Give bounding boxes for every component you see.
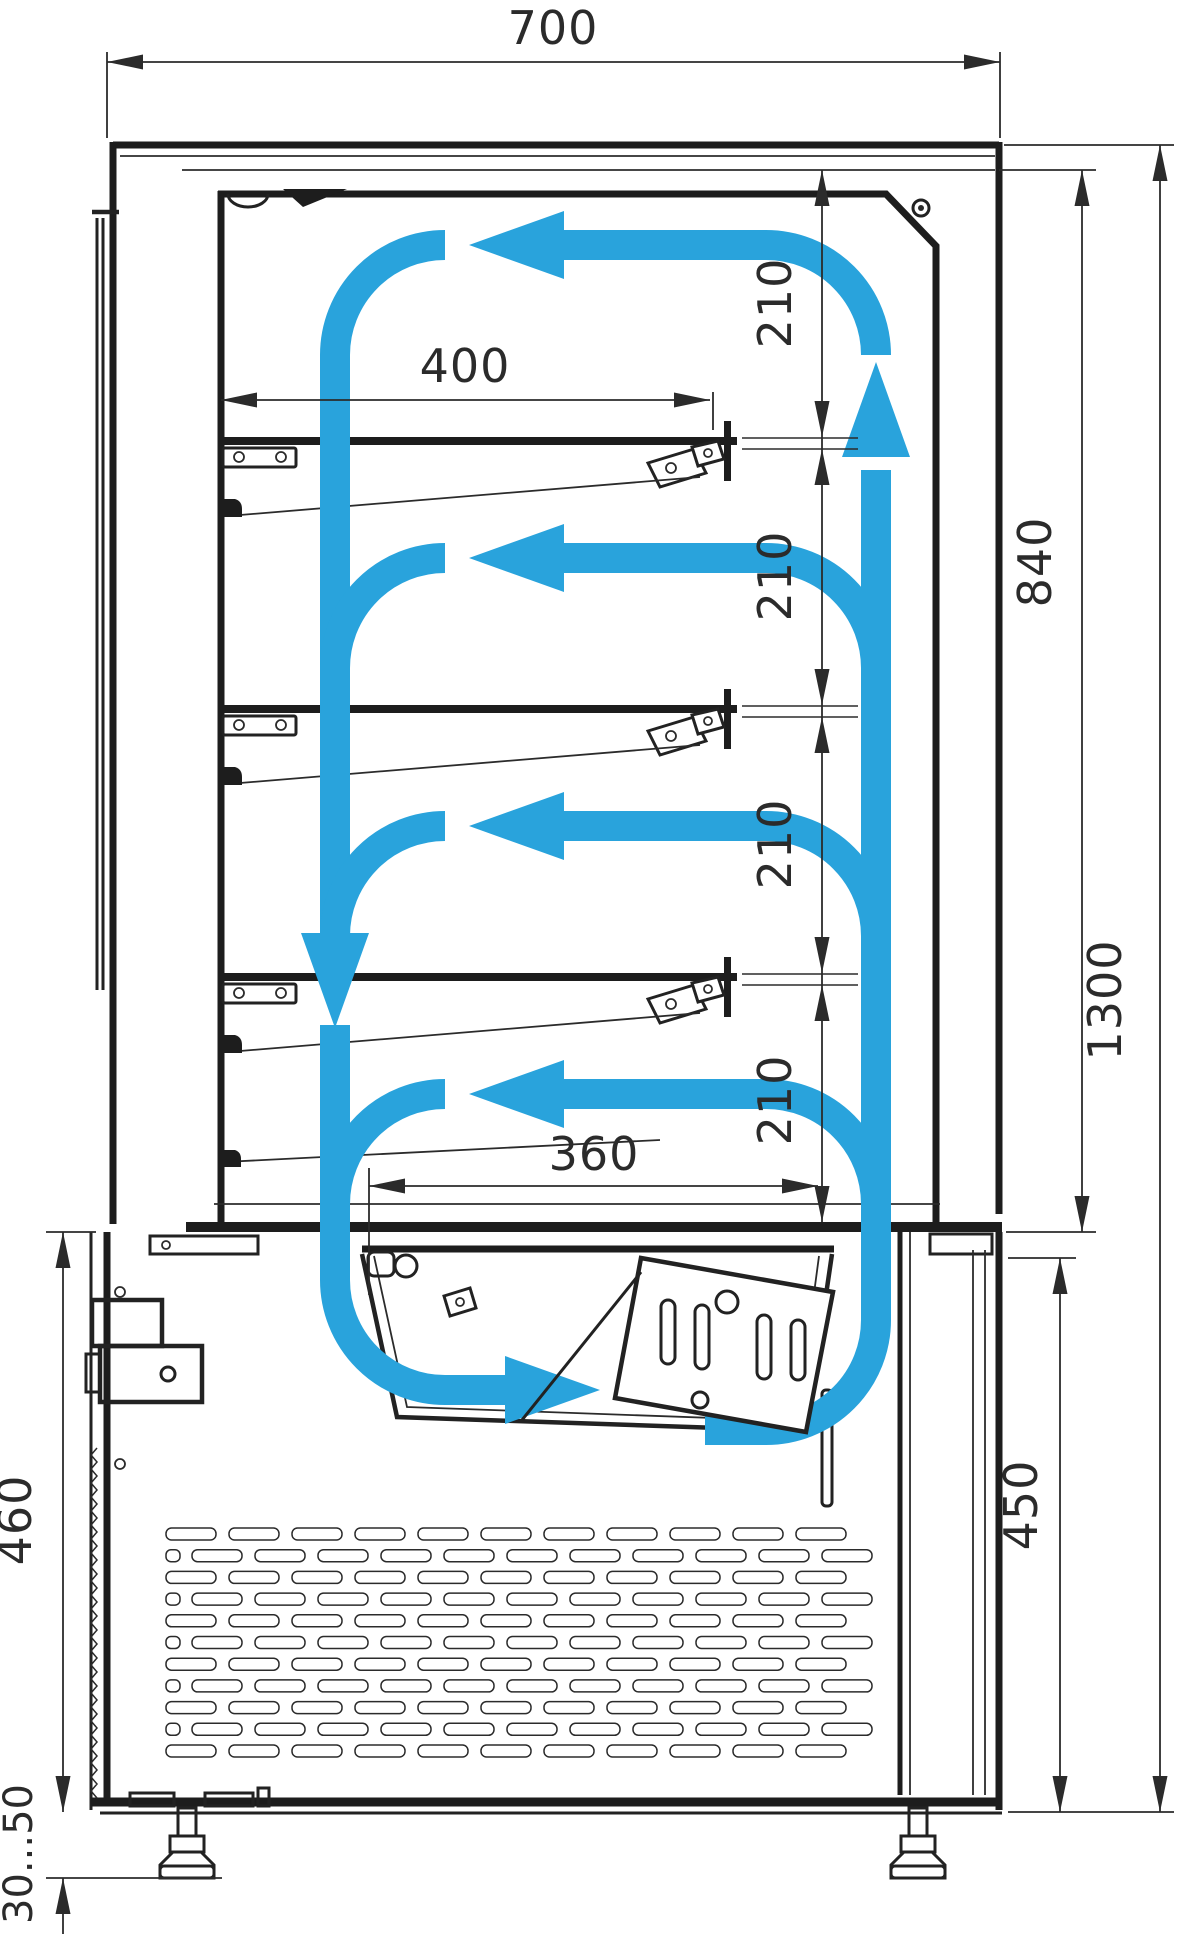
grille-slot [570,1723,620,1735]
grille-slot [733,1615,783,1627]
grille-slot [166,1528,216,1540]
grille-slot [822,1593,872,1605]
airflow-bottom-run [335,1025,505,1390]
grille-slot [166,1702,216,1714]
dim-arrow [815,449,830,485]
dim-arrow [1053,1258,1068,1294]
grille-slot [759,1680,809,1692]
grille-slot [166,1550,180,1562]
electrical-box-upper [92,1300,162,1346]
grille-slot [166,1571,216,1583]
bracket-screw-icon [234,452,244,462]
electrical-box-lower [100,1346,202,1402]
dim-label-700: 700 [508,1,599,55]
evaporator-plate [615,1258,833,1432]
feet-group [46,1808,945,1878]
grille-slot [507,1723,557,1735]
grille-slot [381,1593,431,1605]
seam-right-filler [930,1234,992,1254]
grille-slot [544,1571,594,1583]
grille-slot [607,1702,657,1714]
dim-arrow [815,937,830,973]
grille-slot [696,1593,746,1605]
foot-base [160,1866,214,1878]
dim-arrow [1153,1776,1168,1812]
shelf-wall-lug [221,1035,242,1053]
airflow-band-2-elbow [335,558,445,668]
grille-slot [570,1550,620,1562]
grille-slot [759,1593,809,1605]
adjustable-foot-right [891,1808,945,1878]
grille-slot [166,1637,180,1649]
dim-arrow [815,170,830,206]
grille-slot [570,1593,620,1605]
shelf-1 [221,421,737,517]
grille-slot [481,1528,531,1540]
grille-slot [192,1593,242,1605]
dim-label-30-50: 30...50 [0,1784,42,1924]
grille-slot [192,1550,242,1562]
grille-slot [633,1593,683,1605]
grille-slot [759,1550,809,1562]
grille-slot [822,1550,872,1562]
grille-slot [696,1723,746,1735]
dim-arrow [369,1179,405,1194]
grille-slot [633,1550,683,1562]
dim-210-extensions [742,438,858,985]
corner-screw-dot [918,205,924,211]
grille-slot [166,1593,180,1605]
grille-slot [355,1528,405,1540]
grille-slot [192,1680,242,1692]
shelf-clamp-jaw [692,441,724,466]
dim-arrow [782,1179,818,1194]
grille-slot [355,1615,405,1627]
grille-slot [192,1637,242,1649]
grille-slot [544,1528,594,1540]
grille-slot [570,1637,620,1649]
grille-slot [733,1658,783,1670]
dim-label-1300: 1300 [1078,939,1132,1060]
grille-slot [544,1745,594,1757]
grille-slot [255,1680,305,1692]
shelf-wall-lug [221,767,242,785]
grille-slot [570,1680,620,1692]
shelf-clamp-pin [724,957,731,1017]
grille-slot [292,1571,342,1583]
grille-slot [355,1745,405,1757]
grille-slot [229,1571,279,1583]
grille-slot [444,1637,494,1649]
seam-hinge-screw-icon [162,1241,170,1249]
airflow-arrow-left-1 [469,211,564,279]
grille-slot [355,1571,405,1583]
grille-slot [444,1550,494,1562]
dim-arrow [815,985,830,1021]
pan-pivot-knob-icon [395,1255,417,1277]
display-case-diagram: 700 400 360 210 210 210 210 840 [0,0,1179,1952]
grille-slot [166,1723,180,1735]
grille-slot [229,1658,279,1670]
grille-slot [292,1615,342,1627]
grille-slot [822,1723,872,1735]
airflow-arrow-left-2 [469,524,564,592]
grille-slot [507,1680,557,1692]
airflow-band-3 [557,826,876,936]
grille-slot [166,1745,216,1757]
grille-slot [381,1723,431,1735]
grille-slot [481,1571,531,1583]
dim-arrow [674,393,710,408]
dim-label-210-2: 210 [748,531,802,622]
adjustable-foot-left [160,1808,214,1878]
dim-arrow [815,669,830,705]
grille-slot [255,1723,305,1735]
grille-slot [633,1637,683,1649]
airflow-arrow-left-3 [469,792,564,860]
dim-label-210-1: 210 [748,258,802,349]
grille-slot [607,1658,657,1670]
dim-700-lines [107,52,1000,138]
dim-label-450: 450 [994,1460,1048,1551]
grille-slot [229,1615,279,1627]
grille-slot [292,1745,342,1757]
shelf-support-arm [240,477,700,515]
grille-slot [670,1571,720,1583]
grille-slot [670,1745,720,1757]
grille-slot [696,1550,746,1562]
dim-label-400: 400 [420,339,511,393]
dim-label-210-4: 210 [748,1055,802,1146]
grille-slot [255,1593,305,1605]
grille-slot [759,1723,809,1735]
grille-slot [544,1615,594,1627]
grille-slot [355,1702,405,1714]
electrical-box-knob-icon [161,1367,175,1381]
grille-slot [481,1615,531,1627]
shelf-support-arm [240,745,700,783]
grille-slot [192,1723,242,1735]
airflow-band-2 [557,558,876,668]
airflow-arrow-left-4 [469,1060,564,1128]
grille-slot [796,1615,846,1627]
grille-slot [381,1680,431,1692]
dim-label-460: 460 [0,1475,42,1566]
grille-slot [292,1528,342,1540]
dim-label-840: 840 [1008,517,1062,608]
dim-400-lines [221,392,713,430]
bracket-screw-icon [276,720,286,730]
grille-slot [796,1528,846,1540]
grille-slot [318,1723,368,1735]
grille-slot [607,1528,657,1540]
grille-slot [796,1571,846,1583]
grille-slot [444,1723,494,1735]
dim-arrow [1053,1776,1068,1812]
grille-slot [696,1680,746,1692]
grille-slot [255,1550,305,1562]
shelf-clamp-jaw [692,709,724,734]
dim-arrow [107,55,143,70]
grille-slot [733,1528,783,1540]
grille-slot [381,1550,431,1562]
deck-wall-lug [221,1150,241,1167]
evaporator-plate-group [522,1258,833,1432]
shelf-3 [221,957,737,1053]
airflow-band-3-elbow [335,826,445,936]
grille-slot [759,1637,809,1649]
grille-slot [418,1528,468,1540]
grille-slot [822,1680,872,1692]
ventilation-grille [166,1528,872,1757]
shelf-support-arm [240,1013,700,1051]
grille-slot [633,1723,683,1735]
dim-840-lines [999,170,1096,1232]
shelf-clamp-pin [724,689,731,749]
grille-slot [796,1745,846,1757]
grille-slot [633,1680,683,1692]
base-screw-top-icon [115,1287,125,1297]
pan-clip [444,1288,476,1316]
shelf-clamp-pin [724,421,731,481]
grille-slot [733,1745,783,1757]
grille-slot [481,1745,531,1757]
grille-slot [418,1745,468,1757]
shelf-clamp-jaw [692,977,724,1002]
grille-slot [418,1702,468,1714]
dim-arrow [964,55,1000,70]
dim-label-210-3: 210 [748,799,802,890]
airflow-arrow-up [842,362,910,457]
shelf-2 [221,689,737,785]
bracket-screw-icon [234,988,244,998]
dim-arrow [56,1776,71,1812]
foot-base [891,1866,945,1878]
dim-arrow [1075,1196,1090,1232]
dim-arrow [56,1878,71,1914]
grille-slot [229,1745,279,1757]
grille-slot [481,1702,531,1714]
shelf-wall-lug [221,499,242,517]
grille-slot [607,1571,657,1583]
grille-slot [822,1637,872,1649]
dim-arrow [221,393,257,408]
grille-slot [418,1571,468,1583]
grille-slot [292,1702,342,1714]
dim-arrow [815,401,830,437]
grille-slot [318,1637,368,1649]
seam-hinge-plate [150,1236,258,1254]
grille-slot [607,1745,657,1757]
airflow-top-band [557,245,876,355]
grille-slot [481,1658,531,1670]
grille-slot [166,1658,216,1670]
grille-slot [544,1702,594,1714]
dim-arrow [1075,170,1090,206]
grille-slot [255,1637,305,1649]
grille-slot [318,1680,368,1692]
grille-slot [418,1615,468,1627]
pan-pivot-block [368,1252,394,1276]
grille-slot [733,1702,783,1714]
dim-arrow [56,1232,71,1268]
grille-slot [444,1593,494,1605]
technical-drawing-page: 700 400 360 210 210 210 210 840 [0,0,1179,1952]
foot-nut [170,1836,204,1852]
dim-arrow [815,717,830,753]
grille-slot [544,1658,594,1670]
dim-arrow [1153,145,1168,181]
grille-slot [318,1550,368,1562]
grille-slot [796,1658,846,1670]
grille-slot [670,1528,720,1540]
grille-slot [355,1658,405,1670]
grille-slot [670,1615,720,1627]
grille-slot [166,1615,216,1627]
grille-slot [507,1593,557,1605]
grille-slot [444,1680,494,1692]
lamp-reflector-icon [283,189,347,207]
grille-slot [796,1702,846,1714]
grille-slot [733,1571,783,1583]
grille-slot [229,1528,279,1540]
grille-slot [670,1658,720,1670]
grille-slot [229,1702,279,1714]
grille-slot [166,1680,180,1692]
grille-slot [292,1658,342,1670]
grille-slot [318,1593,368,1605]
grille-slot [418,1658,468,1670]
shelves-group [221,421,737,1053]
grille-slot [607,1615,657,1627]
base-screw-bottom-icon [115,1459,125,1469]
grille-slot [670,1702,720,1714]
bracket-screw-icon [276,988,286,998]
dim-label-360: 360 [549,1127,640,1181]
grille-slot [507,1550,557,1562]
grille-slot [696,1637,746,1649]
bracket-screw-icon [276,452,286,462]
foot-nut [901,1836,935,1852]
grille-slot [381,1637,431,1649]
dim-460-lines [46,1232,96,1812]
bracket-screw-icon [234,720,244,730]
grille-slot [507,1637,557,1649]
